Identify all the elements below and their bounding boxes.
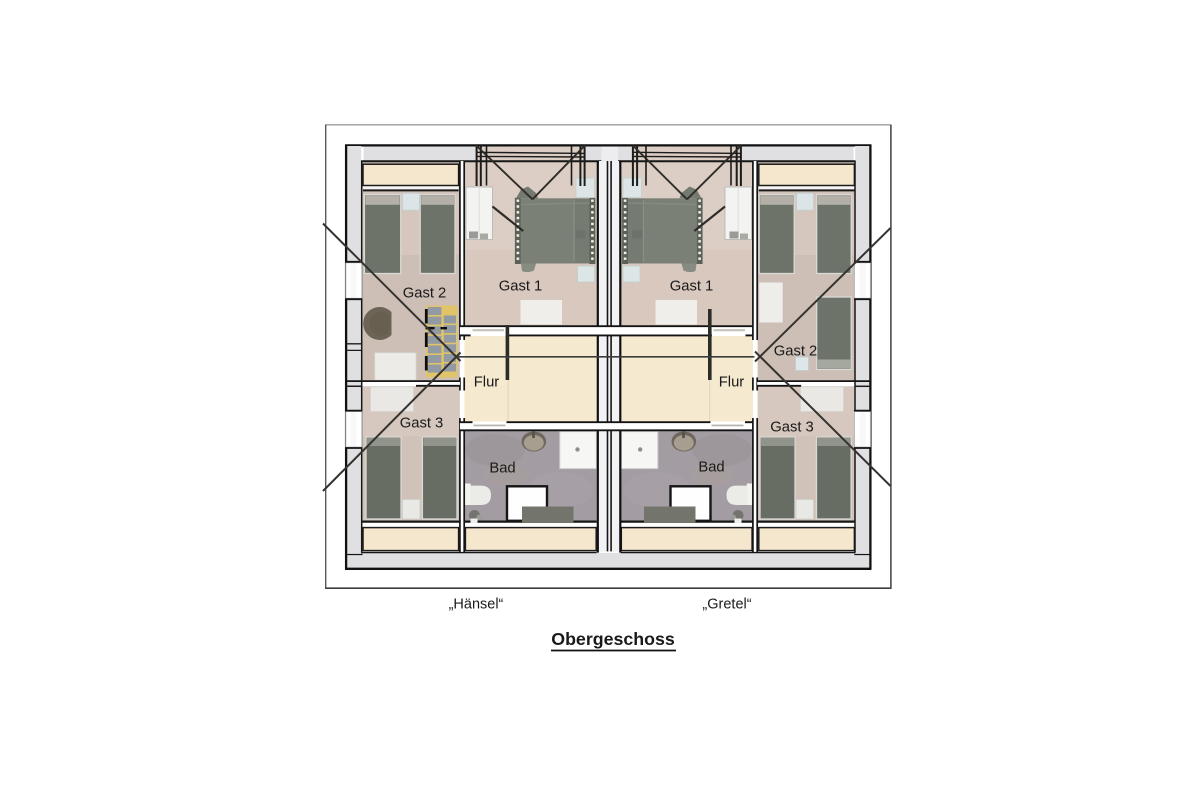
svg-text:Flur: Flur: [474, 375, 500, 391]
svg-text:Bad: Bad: [698, 460, 724, 476]
svg-text:Obergeschoss: Obergeschoss: [551, 629, 675, 649]
svg-text:Gast 1: Gast 1: [670, 279, 714, 295]
svg-text:„Hänsel“: „Hänsel“: [449, 597, 504, 613]
svg-text:Gast 1: Gast 1: [499, 279, 543, 295]
svg-text:Gast 2: Gast 2: [774, 344, 818, 360]
svg-text:Gast 3: Gast 3: [400, 416, 444, 432]
svg-text:Gast 2: Gast 2: [403, 286, 447, 302]
svg-text:Flur: Flur: [719, 375, 745, 391]
svg-text:Bad: Bad: [489, 461, 515, 477]
svg-text:„Gretel“: „Gretel“: [702, 597, 751, 613]
svg-text:Gast 3: Gast 3: [770, 420, 814, 436]
